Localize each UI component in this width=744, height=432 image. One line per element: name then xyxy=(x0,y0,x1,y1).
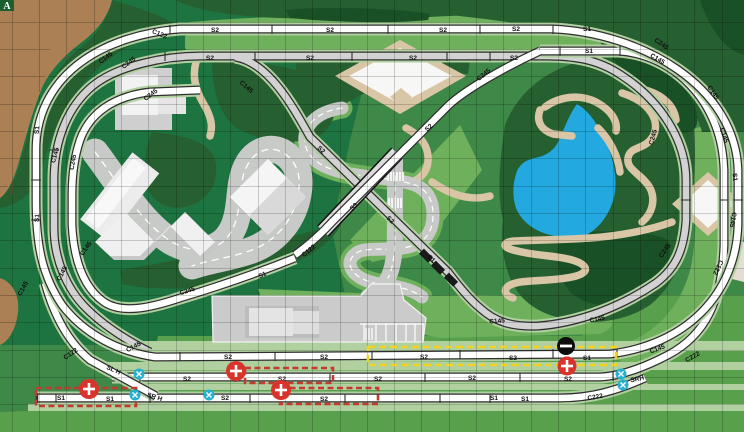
svg-text:S1: S1 xyxy=(521,396,529,403)
svg-text:S2: S2 xyxy=(510,55,518,62)
svg-text:S2: S2 xyxy=(326,27,334,34)
svg-text:S2: S2 xyxy=(512,26,520,33)
svg-text:S1: S1 xyxy=(34,125,42,134)
svg-text:S2: S2 xyxy=(409,55,417,62)
svg-text:C145: C145 xyxy=(489,317,505,325)
svg-text:S1: S1 xyxy=(490,395,498,402)
svg-text:S2: S2 xyxy=(439,27,447,34)
svg-text:S1: S1 xyxy=(583,26,591,33)
svg-text:A: A xyxy=(3,1,11,12)
svg-text:S2: S2 xyxy=(420,354,428,361)
svg-text:S2: S2 xyxy=(206,55,214,62)
svg-text:S2: S2 xyxy=(221,395,229,402)
svg-text:S1: S1 xyxy=(34,213,42,222)
svg-text:S2: S2 xyxy=(320,396,328,403)
svg-text:S2: S2 xyxy=(509,355,517,362)
svg-text:S2: S2 xyxy=(224,354,232,361)
svg-text:S2: S2 xyxy=(468,375,476,382)
svg-text:S2: S2 xyxy=(211,27,219,34)
svg-text:S1: S1 xyxy=(585,48,593,55)
svg-text:S1: S1 xyxy=(731,173,739,182)
svg-text:S2: S2 xyxy=(320,354,328,361)
svg-text:S1: S1 xyxy=(106,396,114,403)
svg-text:S2: S2 xyxy=(306,55,314,62)
svg-text:S1: S1 xyxy=(57,395,65,402)
svg-text:S1: S1 xyxy=(583,355,591,362)
svg-text:S2: S2 xyxy=(374,376,382,383)
svg-text:S2: S2 xyxy=(183,376,191,383)
svg-text:S2: S2 xyxy=(564,376,572,383)
